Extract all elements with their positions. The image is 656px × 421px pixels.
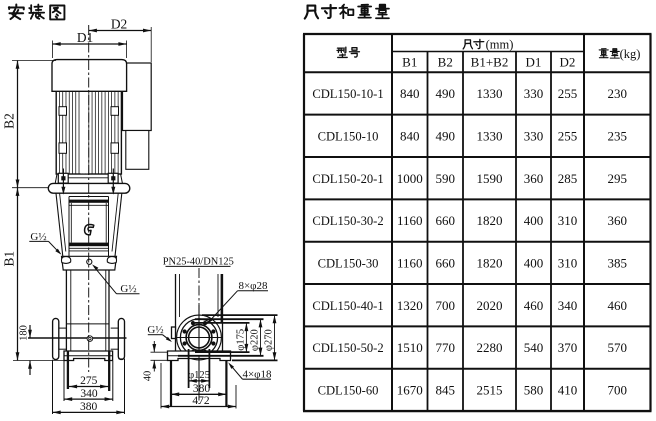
svg-text:D2: D2 [560, 54, 576, 69]
svg-text:460: 460 [524, 298, 544, 313]
svg-text:CDL150-50-2: CDL150-50-2 [312, 341, 383, 355]
svg-text:385: 385 [608, 255, 628, 270]
svg-text:2020: 2020 [477, 298, 503, 313]
svg-text:310: 310 [558, 213, 578, 228]
svg-text:230: 230 [608, 86, 628, 101]
svg-text:B1: B1 [402, 54, 417, 69]
svg-text:840: 840 [400, 86, 420, 101]
svg-text:285: 285 [558, 171, 578, 186]
svg-text:380: 380 [80, 401, 98, 413]
svg-text:400: 400 [524, 255, 544, 270]
svg-text:CDL150-30-2: CDL150-30-2 [312, 214, 383, 228]
svg-text:400: 400 [524, 213, 544, 228]
svg-text:D2: D2 [111, 17, 127, 32]
svg-text:700: 700 [436, 298, 456, 313]
svg-text:φ125: φ125 [188, 370, 210, 381]
svg-text:D1: D1 [526, 54, 542, 69]
svg-text:845: 845 [436, 383, 456, 398]
svg-text:1000: 1000 [397, 171, 423, 186]
svg-text:4×φ18: 4×φ18 [242, 368, 272, 380]
svg-text:370: 370 [558, 340, 578, 355]
svg-text:700: 700 [608, 383, 628, 398]
svg-text:540: 540 [524, 340, 544, 355]
svg-text:360: 360 [608, 213, 628, 228]
svg-text:8×φ28: 8×φ28 [238, 280, 268, 292]
svg-text:360: 360 [524, 171, 544, 186]
svg-text:1160: 1160 [397, 213, 423, 228]
svg-text:255: 255 [558, 128, 578, 143]
svg-text:D1: D1 [77, 30, 93, 45]
svg-text:490: 490 [436, 128, 456, 143]
svg-text:472: 472 [192, 395, 210, 407]
svg-text:340: 340 [80, 388, 98, 400]
svg-text:1510: 1510 [397, 340, 423, 355]
svg-text:B2: B2 [2, 113, 17, 129]
svg-text:590: 590 [436, 171, 456, 186]
svg-text:410: 410 [558, 383, 578, 398]
svg-text:570: 570 [608, 340, 628, 355]
svg-text:1670: 1670 [397, 383, 423, 398]
svg-text:40: 40 [142, 371, 153, 382]
svg-text:460: 460 [608, 298, 628, 313]
svg-text:275: 275 [80, 375, 98, 387]
svg-text:1320: 1320 [397, 298, 423, 313]
svg-text:CDL150-10-1: CDL150-10-1 [312, 87, 383, 101]
svg-text:CDL150-40-1: CDL150-40-1 [312, 299, 383, 313]
svg-text:φ175: φ175 [236, 329, 247, 351]
svg-text:340: 340 [558, 298, 578, 313]
svg-text:CDL150-10: CDL150-10 [318, 129, 379, 143]
svg-text:1590: 1590 [477, 171, 503, 186]
svg-text:310: 310 [558, 255, 578, 270]
svg-text:330: 330 [524, 128, 544, 143]
svg-text:CDL150-60: CDL150-60 [318, 384, 379, 398]
svg-text:330: 330 [524, 86, 544, 101]
svg-text:1820: 1820 [477, 255, 503, 270]
svg-text:1330: 1330 [477, 86, 503, 101]
svg-text:235: 235 [608, 128, 628, 143]
svg-text:(mm): (mm) [486, 38, 514, 52]
svg-text:CDL150-20-1: CDL150-20-1 [312, 172, 383, 186]
svg-text:B1+B2: B1+B2 [471, 54, 509, 69]
svg-text:380: 380 [193, 383, 211, 395]
svg-text:1820: 1820 [477, 213, 503, 228]
svg-text:770: 770 [436, 340, 456, 355]
svg-text:490: 490 [436, 86, 456, 101]
svg-text:B1: B1 [2, 251, 17, 267]
svg-text:φ270: φ270 [264, 329, 275, 351]
svg-text:1330: 1330 [477, 128, 503, 143]
svg-text:840: 840 [400, 128, 420, 143]
svg-text:660: 660 [436, 255, 456, 270]
svg-text:255: 255 [558, 86, 578, 101]
svg-text:CDL150-30: CDL150-30 [318, 256, 379, 270]
svg-text:180: 180 [19, 325, 30, 341]
svg-text:(kg): (kg) [620, 47, 641, 61]
svg-text:295: 295 [608, 171, 628, 186]
svg-text:φ220: φ220 [250, 329, 261, 351]
svg-text:660: 660 [436, 213, 456, 228]
svg-text:1160: 1160 [397, 255, 423, 270]
svg-text:580: 580 [524, 383, 544, 398]
svg-text:B2: B2 [438, 54, 453, 69]
svg-text:2280: 2280 [477, 340, 503, 355]
svg-text:2515: 2515 [477, 383, 503, 398]
